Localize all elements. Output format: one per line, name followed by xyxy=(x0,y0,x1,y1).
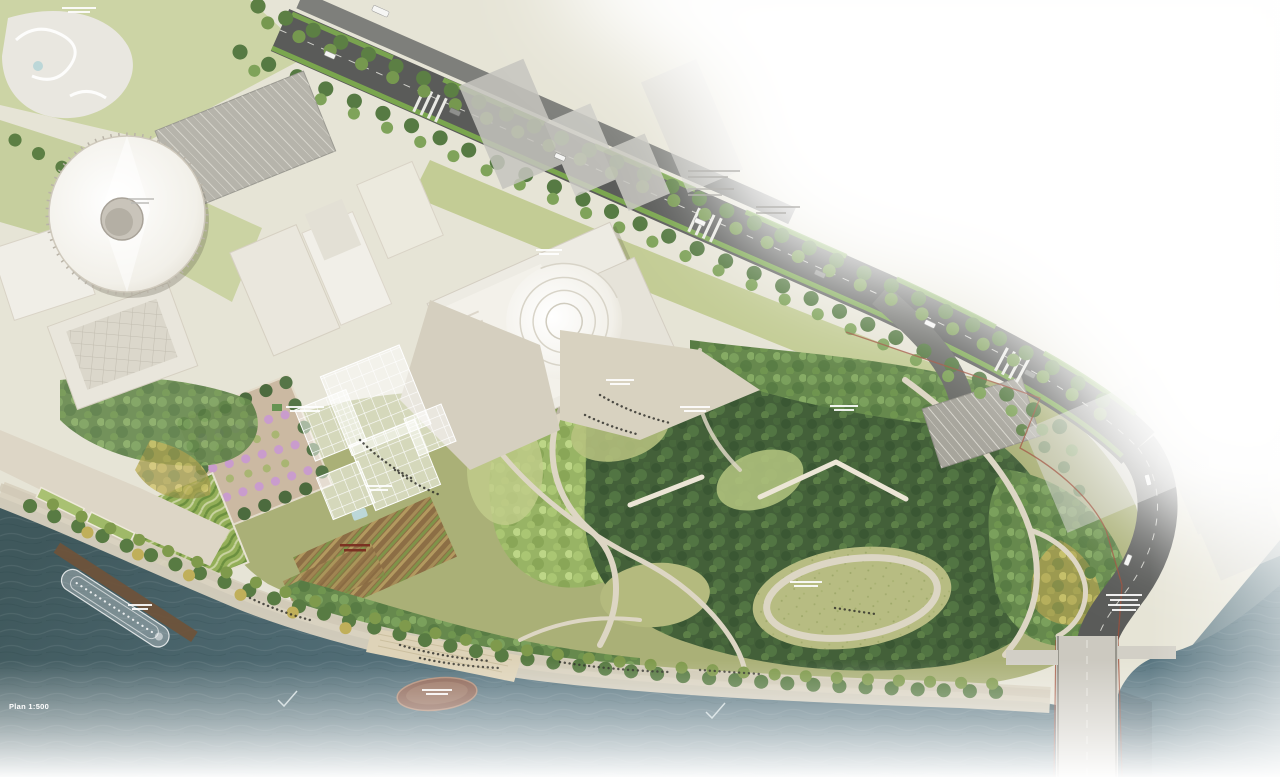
masterplan-rendering xyxy=(0,0,1280,777)
plan-scale-label: Plan 1:500 xyxy=(9,702,49,711)
masterplan-canvas: Plan 1:500 xyxy=(0,0,1280,777)
fog-fade xyxy=(0,0,1280,777)
